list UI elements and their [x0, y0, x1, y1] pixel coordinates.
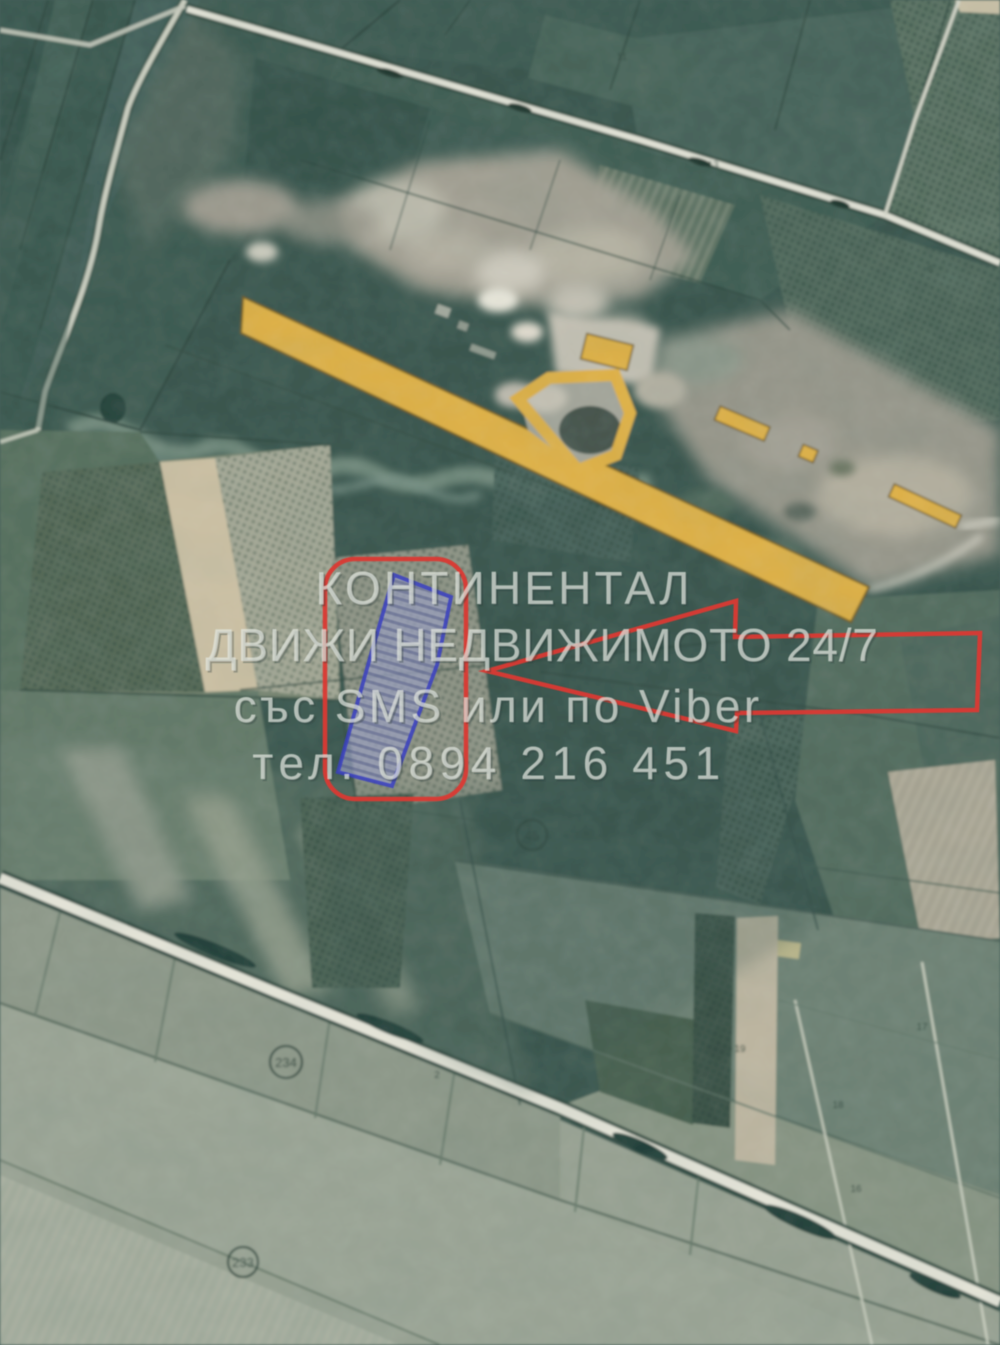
svg-text:КОНТИНЕНТАЛ: КОНТИНЕНТАЛ [315, 562, 692, 614]
svg-text:със SMS или по Viber: със SMS или по Viber [234, 680, 763, 732]
svg-text:ДВИЖИ НЕДВИЖИМОТО 24/7: ДВИЖИ НЕДВИЖИМОТО 24/7 [205, 619, 878, 671]
svg-text:тел. 0894 216 451: тел. 0894 216 451 [252, 737, 726, 789]
